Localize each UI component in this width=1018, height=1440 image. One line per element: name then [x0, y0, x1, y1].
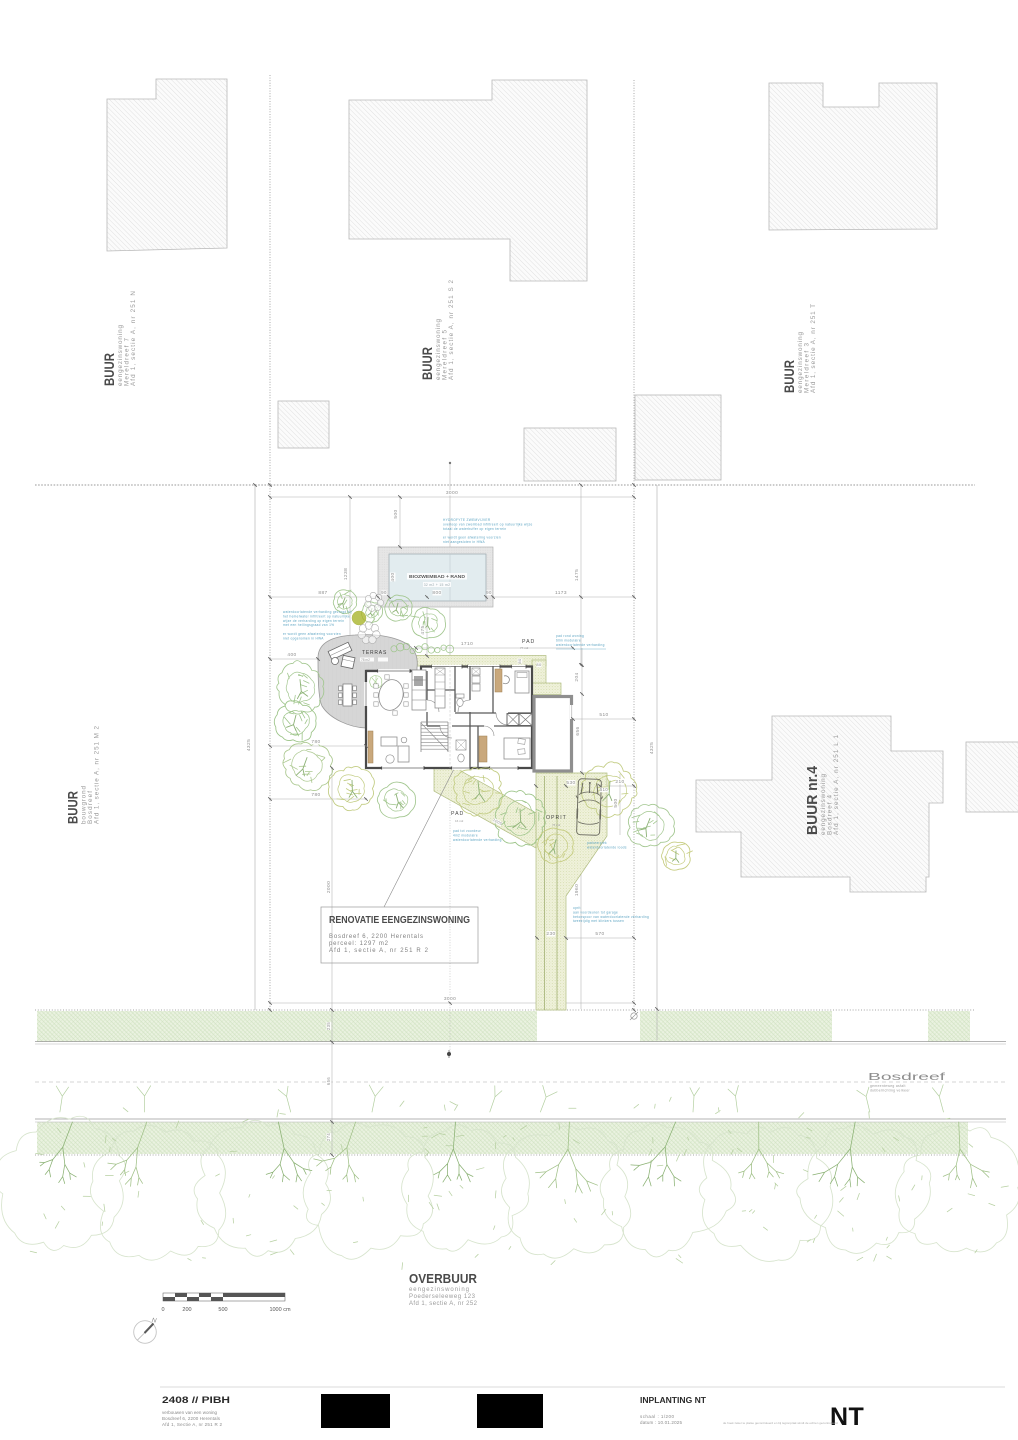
svg-text:400: 400: [390, 572, 396, 581]
svg-text:3000: 3000: [446, 490, 458, 496]
svg-text:77 m2: 77 m2: [520, 646, 529, 650]
svg-text:1710: 1710: [461, 641, 473, 647]
svg-text:510: 510: [600, 787, 608, 792]
svg-text:16 m2: 16 m2: [455, 819, 464, 823]
svg-text:eengezinswoning: eengezinswoning: [409, 1287, 469, 1293]
svg-text:4325: 4325: [649, 742, 655, 754]
svg-text:90: 90: [381, 590, 387, 595]
svg-text:totaal de waterbuffer op eigen: totaal de waterbuffer op eigen terrein: [443, 527, 506, 531]
svg-text:datum : 10.01.2025: datum : 10.01.2025: [640, 1420, 682, 1425]
svg-text:1238: 1238: [343, 568, 349, 580]
svg-text:204: 204: [574, 672, 580, 681]
svg-text:500: 500: [218, 1307, 227, 1313]
svg-text:verbouwen van een woning: verbouwen van een woning: [162, 1410, 217, 1415]
svg-text:2000: 2000: [326, 881, 332, 893]
svg-text:tweezijdig met klinkers tussen: tweezijdig met klinkers tussen: [573, 919, 624, 923]
svg-text:RENOVATIE EENGEZINSWONING: RENOVATIE EENGEZINSWONING: [329, 915, 470, 926]
svg-text:2408 // PIBH: 2408 // PIBH: [162, 1395, 230, 1406]
svg-text:78 m2: 78 m2: [361, 658, 370, 662]
svg-text:HYDROFYTE ZWEMVIJVER: HYDROFYTE ZWEMVIJVER: [443, 518, 491, 522]
svg-text:PAD: PAD: [522, 639, 535, 645]
svg-text:Afd 1, sectie A, nr 252: Afd 1, sectie A, nr 252: [409, 1301, 478, 1307]
svg-text:de hoek zeker te platse gecont: de hoek zeker te platse gecontroleerd en…: [723, 1421, 838, 1425]
svg-text:80: 80: [536, 662, 542, 667]
svg-text:1475: 1475: [574, 569, 580, 581]
svg-text:waterdoorlatende verharding ge: waterdoorlatende verharding gezorgd bij: [283, 610, 352, 614]
svg-text:Afd 1, sectie A, nr 251 T: Afd 1, sectie A, nr 251 T: [810, 304, 817, 393]
svg-text:niet opgenomen in HWA: niet opgenomen in HWA: [283, 636, 324, 640]
svg-text:1960: 1960: [574, 884, 580, 896]
svg-text:Afd 1, sectie A, nr 251 N: Afd 1, sectie A, nr 251 N: [130, 291, 137, 386]
svg-text:met een hellingsgraad van 1%: met een hellingsgraad van 1%: [283, 623, 334, 627]
svg-text:400: 400: [287, 652, 296, 658]
svg-text:niet aangesloten in HWA: niet aangesloten in HWA: [443, 540, 485, 544]
svg-text:het hemelwater infiltreert op: het hemelwater infiltreert op natuurlijk…: [283, 614, 350, 618]
svg-text:waterdoorlatende verharding: waterdoorlatende verharding: [556, 643, 605, 647]
svg-text:780: 780: [311, 792, 320, 798]
svg-text:4325: 4325: [246, 739, 252, 751]
svg-text:Afd 1, sectie A, nr 251 S 2: Afd 1, sectie A, nr 251 S 2: [448, 280, 455, 380]
svg-text:gemeenteweg asfalt: gemeenteweg asfalt: [870, 1084, 906, 1088]
svg-text:274: 274: [326, 1133, 331, 1141]
svg-text:BUUR: BUUR: [101, 353, 117, 386]
svg-text:656: 656: [575, 726, 581, 735]
svg-text:pad tot voordeur: pad tot voordeur: [453, 829, 482, 833]
svg-text:Bosdreef 6, 2200 Herentals: Bosdreef 6, 2200 Herentals: [162, 1416, 221, 1421]
svg-text:1000 cm: 1000 cm: [269, 1307, 291, 1313]
svg-text:perceel: 1297 m2: perceel: 1297 m2: [329, 941, 389, 947]
svg-text:PAD: PAD: [451, 811, 464, 817]
svg-text:Afd 1, Sectie A, nr 251 R 2: Afd 1, Sectie A, nr 251 R 2: [162, 1422, 222, 1427]
svg-text:BIOZWEMBAD + RAND: BIOZWEMBAD + RAND: [409, 574, 466, 579]
svg-text:230: 230: [546, 931, 555, 937]
svg-text:210: 210: [615, 779, 624, 785]
svg-text:aan voordeuren tot garage: aan voordeuren tot garage: [573, 910, 618, 914]
svg-text:Afd 1, sectie A, nr 251 M 2: Afd 1, sectie A, nr 251 M 2: [94, 726, 101, 824]
svg-text:BUUR nr.4: BUUR nr.4: [804, 765, 821, 835]
svg-text:parkeerplek: parkeerplek: [587, 841, 607, 845]
svg-text:200: 200: [182, 1307, 191, 1313]
svg-text:overloop van zwembad infiltree: overloop van zwembad infiltreert op natu…: [443, 522, 533, 526]
svg-text:90: 90: [486, 590, 492, 595]
svg-text:0: 0: [161, 1307, 164, 1313]
svg-text:TERRAS: TERRAS: [362, 650, 387, 656]
svg-text:wijze de verharding op eigen t: wijze de verharding op eigen terrein: [283, 619, 344, 623]
svg-text:oprit: oprit: [573, 906, 581, 910]
svg-text:schaal : 1/200: schaal : 1/200: [640, 1414, 674, 1419]
svg-text:656: 656: [326, 1077, 331, 1085]
svg-text:betonspoor van waterdoorlatend: betonspoor van waterdoorlatende verhardi…: [573, 915, 649, 919]
svg-text:500: 500: [613, 798, 619, 807]
svg-text:780: 780: [311, 739, 320, 745]
svg-text:475: 475: [420, 625, 426, 634]
svg-text:OVERBUUR: OVERBUUR: [409, 1272, 477, 1286]
svg-text:BUUR: BUUR: [419, 347, 435, 380]
svg-text:pad rond woning: pad rond woning: [556, 634, 584, 638]
svg-text:4m2 modulaire: 4m2 modulaire: [453, 833, 478, 837]
svg-text:76 m2: 76 m2: [552, 823, 561, 827]
svg-text:3000: 3000: [444, 996, 456, 1002]
svg-text:er wordt geen afwatering voorz: er wordt geen afwatering voorzien: [443, 536, 501, 540]
svg-text:BUUR: BUUR: [781, 360, 797, 393]
svg-text:waterdoorlatende verharding: waterdoorlatende verharding: [453, 838, 502, 842]
svg-text:NT: NT: [830, 1403, 864, 1431]
svg-text:510: 510: [599, 712, 608, 718]
svg-text:dubbelrichting verkeer: dubbelrichting verkeer: [870, 1089, 911, 1093]
svg-text:Bosdreef 6, 2200 Herentals: Bosdreef 6, 2200 Herentals: [329, 934, 423, 940]
svg-text:INPLANTING NT: INPLANTING NT: [640, 1396, 706, 1405]
svg-text:887: 887: [318, 590, 327, 596]
svg-text:800: 800: [432, 590, 441, 596]
svg-text:32 m2 + 15 m2: 32 m2 + 15 m2: [424, 583, 451, 587]
svg-text:500: 500: [393, 509, 399, 518]
svg-text:570: 570: [595, 931, 604, 937]
svg-text:530: 530: [566, 780, 575, 786]
svg-text:Poederseleeweg 123: Poederseleeweg 123: [409, 1294, 476, 1300]
svg-text:235: 235: [326, 1022, 331, 1030]
svg-text:er wordt geen afwatering voorz: er wordt geen afwatering voorzien: [283, 632, 341, 636]
svg-text:BUUR: BUUR: [65, 791, 81, 824]
svg-text:OPRIT: OPRIT: [546, 815, 567, 821]
svg-text:Afd 1, sectie A, nr 251 R 2: Afd 1, sectie A, nr 251 R 2: [329, 948, 429, 954]
svg-text:60m modulaire: 60m modulaire: [556, 638, 581, 642]
svg-text:Bosdreef: Bosdreef: [868, 1071, 945, 1083]
svg-text:80: 80: [517, 658, 522, 664]
svg-text:waterdoorlatende loods: waterdoorlatende loods: [587, 845, 627, 849]
svg-text:1173: 1173: [555, 590, 567, 596]
